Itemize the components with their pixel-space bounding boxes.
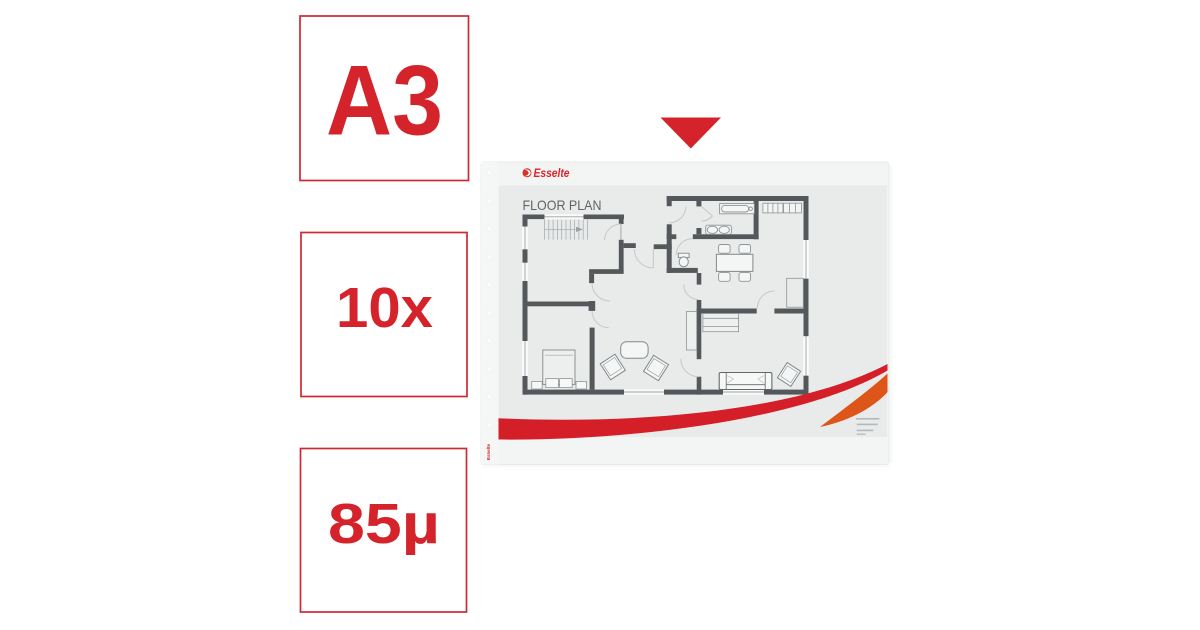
- svg-text:Esselte: Esselte: [486, 443, 491, 460]
- svg-text:FLOOR PLAN: FLOOR PLAN: [523, 197, 602, 213]
- svg-text:85µ: 85µ: [328, 492, 440, 555]
- svg-text:Esselte: Esselte: [534, 167, 570, 180]
- svg-text:A3: A3: [326, 45, 443, 156]
- svg-text:10x: 10x: [336, 276, 434, 339]
